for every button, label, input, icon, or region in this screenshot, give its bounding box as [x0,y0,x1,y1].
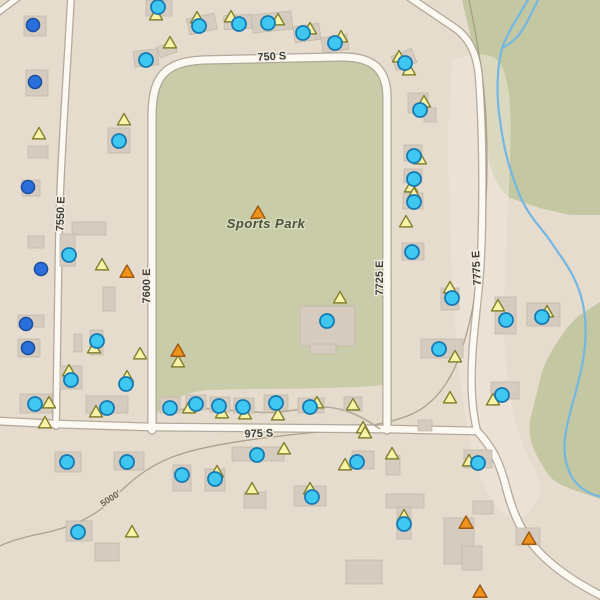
marker-cyan-circle[interactable] [28,397,42,411]
marker-cyan-circle[interactable] [407,149,421,163]
street-label-7600-e: 7600 E [141,269,153,304]
building [74,334,82,352]
marker-cyan-circle[interactable] [163,401,177,415]
marker-cyan-circle[interactable] [175,468,189,482]
marker-cyan-circle[interactable] [350,455,364,469]
street-label-7550-e: 7550 E [54,196,67,231]
marker-cyan-circle[interactable] [192,19,206,33]
street-label-975-s: 975 S [244,428,273,441]
marker-blue-circle[interactable] [22,181,35,194]
map-canvas[interactable]: 750 S975 S7550 E7600 E7725 E7775 ESports… [0,0,600,600]
marker-blue-circle[interactable] [35,263,48,276]
building [103,287,115,311]
building [72,222,106,235]
building [418,420,432,431]
marker-cyan-circle[interactable] [208,472,222,486]
marker-cyan-circle[interactable] [64,373,78,387]
marker-cyan-circle[interactable] [250,448,264,462]
building [28,146,48,158]
marker-blue-circle[interactable] [22,342,35,355]
marker-cyan-circle[interactable] [432,342,446,356]
marker-cyan-circle[interactable] [90,334,104,348]
marker-cyan-circle[interactable] [119,377,133,391]
building [95,543,119,561]
marker-cyan-circle[interactable] [120,455,134,469]
marker-cyan-circle[interactable] [60,455,74,469]
marker-cyan-circle[interactable] [471,456,485,470]
street-label-7775-e: 7775 E [470,250,484,285]
street-label-7725-e: 7725 E [374,261,386,296]
building [310,344,336,354]
marker-cyan-circle[interactable] [269,396,283,410]
street-label-750-s: 750 S [257,50,286,63]
building [386,494,424,508]
marker-cyan-circle[interactable] [62,248,76,262]
marker-cyan-circle[interactable] [407,172,421,186]
park-area [152,59,385,422]
marker-cyan-circle[interactable] [499,313,513,327]
marker-cyan-circle[interactable] [212,399,226,413]
marker-cyan-circle[interactable] [303,400,317,414]
marker-cyan-circle[interactable] [407,195,421,209]
marker-cyan-circle[interactable] [535,310,549,324]
marker-cyan-circle[interactable] [139,53,153,67]
marker-cyan-circle[interactable] [151,0,165,14]
marker-cyan-circle[interactable] [495,388,509,402]
marker-blue-circle[interactable] [29,76,42,89]
marker-cyan-circle[interactable] [100,401,114,415]
marker-cyan-circle[interactable] [232,17,246,31]
map-viewport[interactable]: 750 S975 S7550 E7600 E7725 E7775 ESports… [0,0,600,600]
building [346,560,382,584]
marker-cyan-circle[interactable] [405,245,419,259]
marker-cyan-circle[interactable] [305,490,319,504]
marker-cyan-circle[interactable] [71,525,85,539]
marker-cyan-circle[interactable] [445,291,459,305]
marker-cyan-circle[interactable] [413,103,427,117]
park-label: Sports Park [227,216,306,231]
marker-cyan-circle[interactable] [189,397,203,411]
marker-cyan-circle[interactable] [261,16,275,30]
marker-cyan-circle[interactable] [296,26,310,40]
marker-cyan-circle[interactable] [320,314,334,328]
building [28,236,44,248]
marker-cyan-circle[interactable] [398,56,412,70]
marker-blue-circle[interactable] [20,318,33,331]
marker-blue-circle[interactable] [27,19,40,32]
marker-cyan-circle[interactable] [397,517,411,531]
marker-cyan-circle[interactable] [236,400,250,414]
marker-cyan-circle[interactable] [328,36,342,50]
marker-cyan-circle[interactable] [112,134,126,148]
building [462,546,482,570]
building [473,501,493,514]
